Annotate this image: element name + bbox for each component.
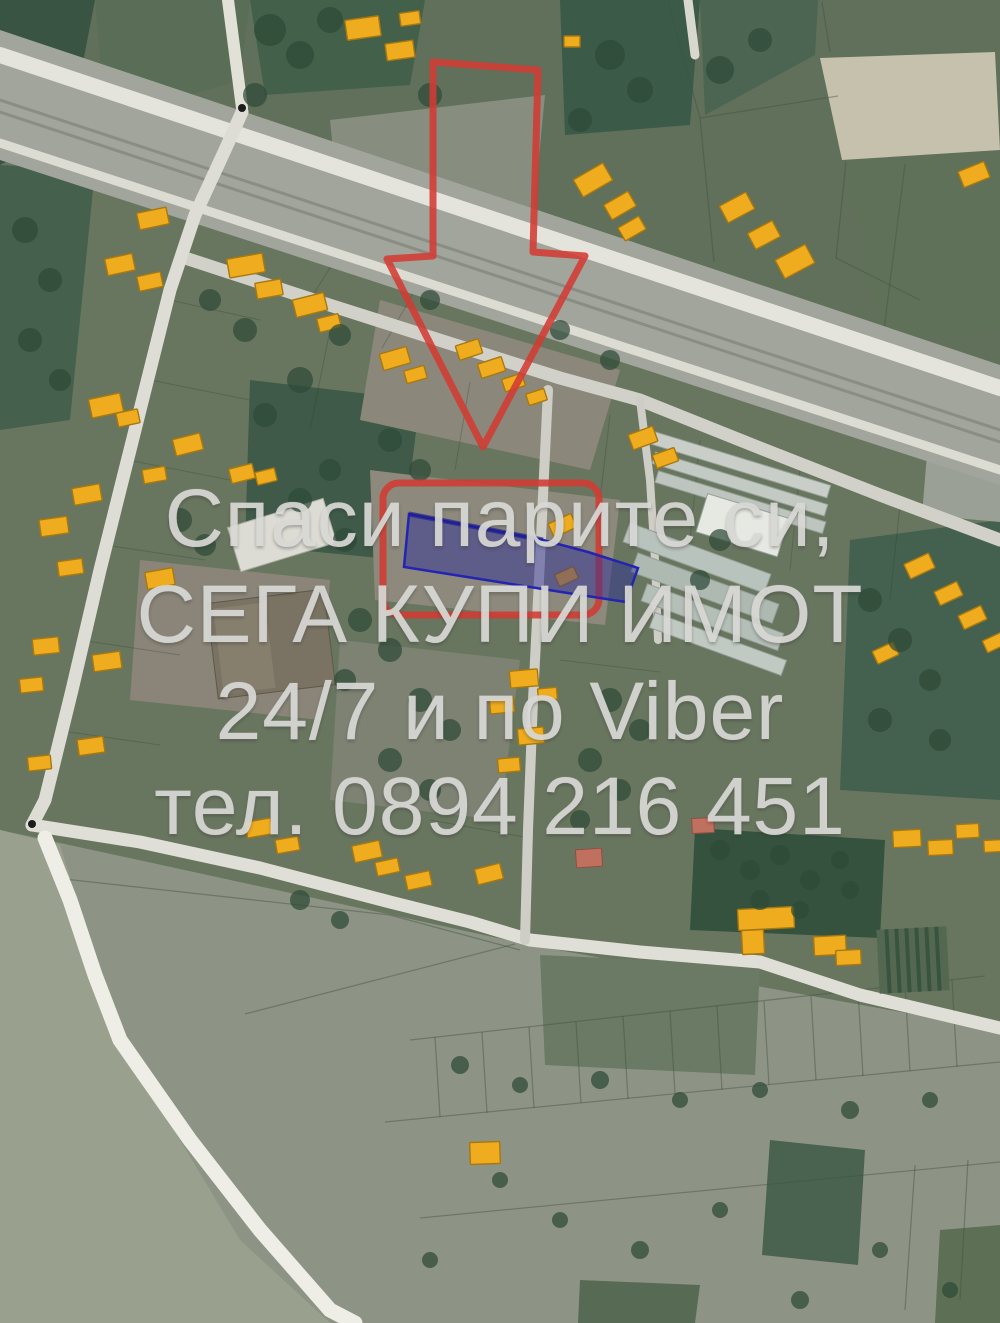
tree	[748, 28, 772, 52]
building	[32, 637, 60, 656]
building	[470, 1141, 501, 1164]
tree	[287, 367, 313, 393]
tree	[631, 1241, 649, 1259]
building	[385, 40, 415, 61]
building	[27, 755, 51, 771]
tree	[290, 890, 310, 910]
tree	[791, 901, 809, 919]
junction-dot	[238, 104, 246, 112]
building	[836, 949, 862, 965]
tree	[831, 851, 849, 869]
building	[142, 466, 167, 484]
tree	[38, 268, 62, 292]
watermark-line-1: Спаси парите си,	[165, 478, 836, 560]
tree	[942, 1282, 958, 1298]
tree	[233, 318, 257, 342]
tree	[12, 217, 38, 243]
watermark-line-4: тел. 0894 216 451	[154, 766, 846, 848]
tree	[591, 1071, 609, 1089]
building	[19, 677, 43, 693]
tree	[254, 14, 286, 46]
listing-photo: Спаси парите си, СЕГА КУПИ ИМОТ 24/7 и п…	[0, 0, 1000, 1323]
tree	[317, 7, 343, 33]
tree	[868, 708, 892, 732]
watermark-line-3: 24/7 и по Viber	[216, 671, 785, 753]
tree	[199, 289, 221, 311]
tree	[420, 290, 440, 310]
tree	[752, 1082, 768, 1098]
tree	[331, 911, 349, 929]
building	[92, 651, 122, 672]
tree	[841, 1101, 859, 1119]
tree	[712, 1202, 728, 1218]
tree	[451, 1056, 469, 1074]
tree	[552, 1212, 568, 1228]
tree	[378, 428, 402, 452]
building	[928, 839, 954, 855]
watermark-line-2: СЕГА КУПИ ИМОТ	[137, 574, 864, 656]
tree	[18, 328, 42, 352]
tree	[800, 870, 820, 890]
satellite-map	[0, 0, 1000, 1323]
tree	[568, 108, 592, 132]
tree	[791, 1291, 809, 1309]
tree	[600, 350, 620, 370]
tree	[49, 369, 71, 391]
tree	[627, 77, 653, 103]
tree	[492, 1172, 508, 1188]
building	[956, 823, 980, 838]
tree	[286, 41, 314, 69]
tree	[243, 83, 267, 107]
building	[399, 11, 421, 27]
building	[737, 907, 794, 931]
tree	[841, 881, 859, 899]
tree	[706, 56, 734, 84]
tree	[740, 860, 760, 880]
tree	[253, 403, 277, 427]
building	[893, 829, 922, 847]
tree	[888, 628, 912, 652]
building	[39, 516, 69, 537]
tree	[922, 1092, 938, 1108]
tree	[672, 1092, 688, 1108]
orchard	[876, 926, 949, 994]
building	[564, 36, 580, 47]
tree	[872, 1242, 888, 1258]
building	[345, 16, 381, 41]
junction-dot	[28, 820, 36, 828]
building	[741, 929, 764, 954]
tree	[329, 324, 351, 346]
tree	[422, 1252, 438, 1268]
tree	[919, 669, 941, 691]
tree	[595, 40, 625, 70]
building	[984, 840, 1000, 853]
tree	[750, 890, 770, 910]
building	[77, 736, 105, 755]
building	[57, 558, 84, 576]
tree	[929, 729, 951, 751]
tree	[512, 1077, 528, 1093]
